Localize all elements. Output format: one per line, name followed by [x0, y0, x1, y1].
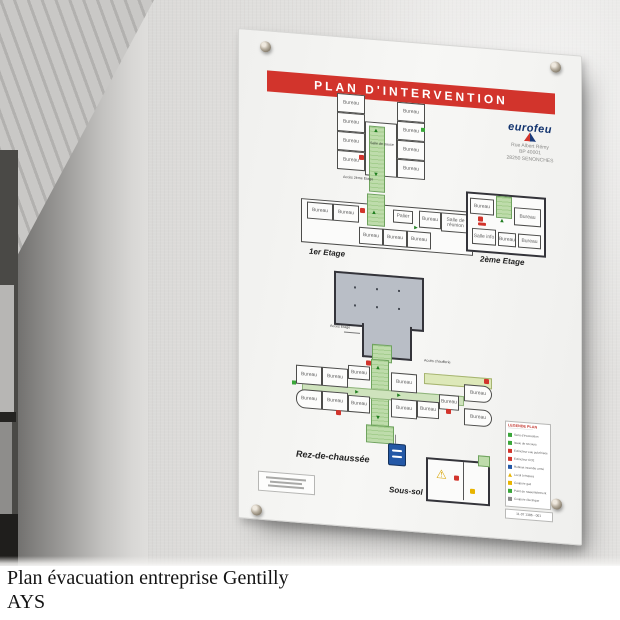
co2-extinguisher-icon: [508, 457, 512, 461]
evacuation-arrow-icon: ▲: [375, 365, 381, 371]
legend-label: Point de rassemblement: [514, 490, 546, 496]
cartouche-text-line: [268, 484, 304, 489]
legend-label: Robinet incendie armé: [514, 466, 544, 471]
exit-icon: [292, 380, 296, 384]
basement-label: Sous-sol: [389, 485, 423, 497]
room-label: Bureau: [470, 198, 494, 216]
assembly-point-icon: [508, 489, 512, 493]
hazard-area-icon: [508, 473, 512, 477]
extinguisher-icon: [446, 409, 451, 414]
extinguisher-icon: [360, 208, 365, 213]
access-floor-label: Accès Etage: [330, 324, 350, 330]
room-label: Bureau: [337, 93, 365, 114]
room-label: Bureau: [337, 112, 365, 133]
room-label: Bureau: [464, 408, 492, 427]
corridor-door-glass-lower: [0, 422, 12, 514]
plan-reference: 11-07 1386 - 001: [505, 508, 553, 522]
hazard-warning-icon: ⚠: [436, 468, 447, 481]
column-dot: [398, 308, 400, 310]
extinguisher-icon: [484, 379, 489, 384]
marker-text-line: [392, 455, 402, 458]
plan-hall: Accès Etage: [334, 263, 429, 371]
ground-floor-label: Rez-de-chaussée: [296, 449, 370, 465]
wall-photo: PLAN D'INTERVENTION eurofeu Rue Albert R…: [0, 0, 620, 566]
corridor-door-frame: [0, 412, 16, 422]
fire-hose-icon: [508, 465, 512, 469]
room-label: Bureau: [417, 400, 439, 419]
room-label: Bureau: [397, 140, 425, 161]
alarm-icon: [478, 222, 486, 226]
plan-top-wing: Bureau Bureau Bureau Bureau Bureau Burea…: [337, 91, 423, 198]
room-label: Bureau: [514, 207, 541, 227]
entrance-stair: [366, 424, 394, 444]
column-dot: [398, 290, 400, 292]
legend-label: Coupure électrique: [514, 498, 539, 503]
column-dot: [354, 304, 356, 306]
room-label: Bureau: [333, 204, 359, 223]
standoff-screw-top-right: [550, 61, 561, 73]
legend-label: Extincteur eau pulvérisée: [514, 450, 548, 456]
room-label: Bureau: [296, 389, 322, 410]
room-label: Bureau: [419, 211, 441, 230]
room-label: Bureau: [407, 231, 431, 250]
staircase: [369, 126, 385, 193]
staircase: [496, 196, 512, 219]
standoff-screw-bottom-right: [551, 498, 562, 510]
evacuation-arrow-icon: ▼: [375, 415, 381, 421]
gas-cutoff-icon: [470, 489, 475, 494]
room-label: Bureau: [464, 384, 492, 403]
room-label: Bureau: [337, 131, 365, 152]
room-label: Bureau: [498, 232, 516, 247]
room-label: Bureau: [397, 102, 425, 123]
room-label: Salle info: [472, 228, 496, 246]
room-label: Bureau: [296, 365, 322, 386]
exit-icon: [421, 128, 425, 132]
caption-subtitle: AYS: [7, 591, 45, 614]
room-label: Bureau: [518, 234, 541, 250]
room-divider: [463, 462, 464, 500]
plan-first-floor: Bureau Bureau Palier Bureau Salle de réu…: [301, 198, 471, 274]
room-label: Bureau: [391, 398, 417, 419]
eurofeu-logo-block: eurofeu Rue Albert Rémy BP 40001 28250 S…: [499, 120, 561, 165]
evacuation-arrow-icon: ►: [354, 389, 360, 395]
photo-bottom-fade: [0, 556, 620, 566]
column-dot: [376, 288, 378, 290]
room-label: Bureau: [322, 367, 348, 388]
marker-connector-line: [395, 435, 396, 444]
room-label: Bureau: [383, 229, 407, 248]
room-label: Bureau: [348, 395, 370, 414]
evacuation-arrow-icon: ▲: [373, 128, 379, 134]
plan-reference-number: 11-07 1386 - 001: [517, 513, 542, 518]
evacuation-arrow-icon: ►: [396, 393, 402, 399]
room-label: Bureau: [307, 202, 333, 221]
extinguisher-icon: [454, 475, 459, 480]
room-label: Palier: [393, 209, 413, 224]
label-leader-line: [344, 332, 360, 334]
water-extinguisher-icon: [508, 449, 512, 453]
caption-title: Plan évacuation entreprise Gentilly: [7, 567, 289, 590]
standoff-screw-top-left: [260, 41, 271, 53]
caption-strip: Plan évacuation entreprise Gentilly AYS: [0, 566, 620, 620]
legend-label: Extincteur CO2: [514, 458, 534, 463]
room-label: Bureau: [348, 365, 370, 381]
evacuation-arrow-icon: ▲: [371, 210, 377, 216]
you-are-here-marker-icon: [388, 443, 406, 466]
evacuation-direction-icon: [508, 433, 512, 437]
column-dot: [376, 306, 378, 308]
gas-cutoff-icon: [508, 481, 512, 485]
basement-exit: [478, 455, 490, 467]
legend-label: Issue de secours: [514, 442, 537, 447]
legend-box: LEGENDE PLAN Sens d'évacuation Issue de …: [505, 420, 551, 510]
corridor-door-glass: [0, 285, 14, 415]
evacuation-plan-panel: PLAN D'INTERVENTION eurofeu Rue Albert R…: [238, 28, 582, 546]
evacuation-arrow-icon: ►: [413, 225, 419, 231]
first-floor-label: 1er Etage: [309, 247, 345, 259]
standoff-screw-bottom-left: [251, 504, 262, 516]
power-cutoff-icon: [508, 497, 512, 501]
legend-label: Coupure gaz: [514, 482, 531, 486]
room-label: Bureau: [322, 391, 348, 412]
column-dot: [354, 286, 356, 288]
screenshot: PLAN D'INTERVENTION eurofeu Rue Albert R…: [0, 0, 620, 620]
access-boiler-label: Accès chaufferie: [424, 359, 451, 365]
emergency-exit-icon: [508, 441, 512, 445]
legend-label: Local à risques: [514, 474, 534, 479]
room-label: Bureau: [391, 372, 417, 393]
evacuation-arrow-icon: ▼: [373, 172, 379, 178]
cartouche-box: [258, 471, 315, 496]
extinguisher-icon: [366, 360, 371, 365]
extinguisher-icon: [336, 410, 341, 415]
second-floor-label: 2ème Etage: [480, 254, 524, 267]
marker-text-line: [392, 449, 402, 452]
plan-basement: ⚠: [426, 453, 496, 509]
legend-label: Sens d'évacuation: [514, 434, 538, 439]
extinguisher-icon: [478, 216, 483, 221]
room-label: Bureau: [337, 150, 365, 171]
plan-second-floor: Bureau Bureau Salle info Bureau Bureau ▲…: [466, 191, 546, 269]
legend-title: LEGENDE PLAN: [508, 424, 533, 430]
room-label: Bureau: [359, 227, 383, 246]
extinguisher-icon: [359, 155, 364, 160]
evacuation-arrow-icon: ▲: [499, 218, 505, 224]
hall-outline: [334, 271, 424, 332]
room-label: Bureau: [397, 159, 425, 180]
